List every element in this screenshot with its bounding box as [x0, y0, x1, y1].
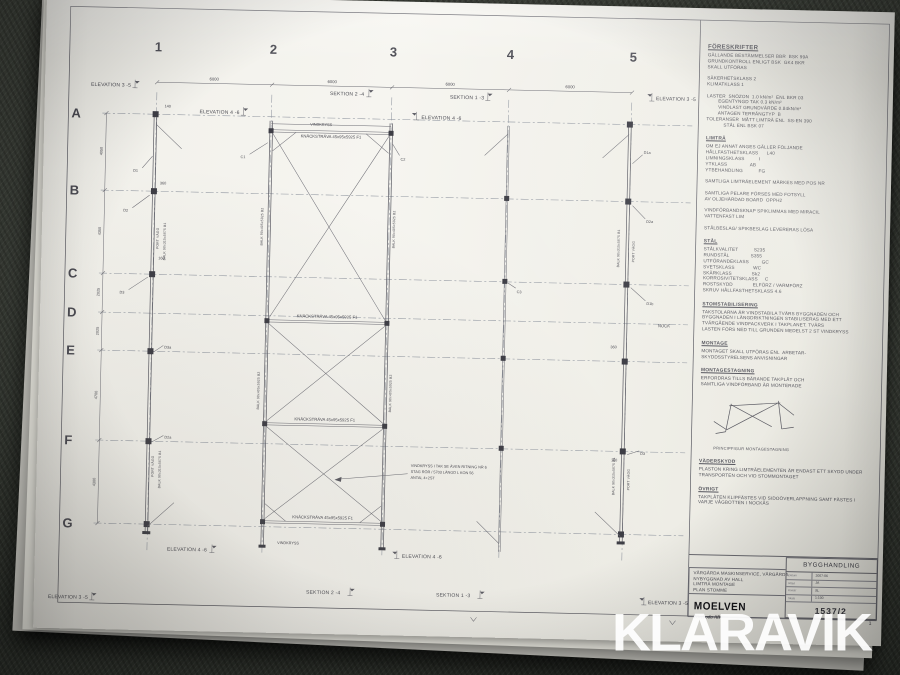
- grid-letter: F: [64, 432, 72, 447]
- beam-label: BALK 90x405x5925 B2: [388, 374, 393, 412]
- callout: D3a: [164, 345, 172, 349]
- dimension-label: 4350: [98, 227, 102, 236]
- elevation-label: ELEVATION 4 -6: [199, 109, 239, 116]
- grid-number: 3: [390, 44, 398, 59]
- wall-label: PORT VÄGG: [155, 227, 159, 249]
- left-dimension-chain: 4050 4350 2025 2025 4700 4300: [91, 111, 108, 525]
- section-label: SEKTION 1 -3: [436, 592, 470, 599]
- grid-letter: C: [68, 265, 78, 280]
- callout: D1b: [646, 302, 653, 306]
- field-label: Skala: [786, 595, 812, 602]
- dimension-label: 4300: [92, 478, 96, 487]
- elevation-label: ELEVATION 4 -6: [402, 554, 442, 561]
- beam-label: BALK 90x315x5675 B1: [611, 457, 616, 495]
- strut-label: KNÄCKSTRÄVA 45x95x5925 F1: [292, 514, 353, 520]
- dimension-label: 360: [610, 345, 616, 349]
- dimension-label: 160: [611, 458, 617, 462]
- strut-label: KNÄCKSTRÄVA 45x95x5925 F1: [301, 133, 362, 139]
- field-value: JA: [812, 580, 876, 588]
- notes-section-lines: TAKPLÅTEN KLIPFÄSTES VID SIDOÖVERLAPPNIN…: [698, 494, 874, 509]
- wall-label: PORT VÄGG: [626, 469, 630, 491]
- strut-label: KNÄCKSTRÄVA 45x95x5925 F1: [294, 416, 355, 422]
- braced-frames-grid-2-3: [258, 121, 394, 551]
- notes-section-lines: GÄLLANDE BESTÄMMELSER BBR BSK 99AGRUNDKO…: [706, 52, 884, 131]
- grid-letters: A B C D E F G: [62, 105, 81, 530]
- dimension-label: 6000: [327, 79, 337, 84]
- notes-section-lines: ERFORDRAS TILLS BÄRANDE TAKPLÅT OCHSAMTL…: [701, 376, 877, 391]
- vindkryss-label: VINDKRYSS: [310, 123, 332, 127]
- wall-label: PORT VÄGG: [151, 455, 155, 477]
- dimension-label: 2025: [96, 288, 100, 297]
- project-description: VÅRGÅRDA MASKINSERVICE, VÅRGÅRDANYBYGGNA…: [688, 567, 786, 596]
- wall-label: PORT VÄGG: [631, 241, 635, 263]
- field-label: Datum: [786, 572, 812, 579]
- beam-label: BALK 90x405x5925 B2: [256, 372, 261, 410]
- drawing-sheet: 1 2 3 4 5 A B C D E F G 6000 6000 6000 6…: [33, 0, 895, 646]
- column-line-grid-4: [476, 125, 511, 551]
- callout: D1a: [644, 151, 652, 155]
- grid-number: 4: [507, 47, 515, 62]
- dimension-label: 4050: [100, 147, 104, 156]
- vindkryss-label: VINDKRYSS: [277, 541, 299, 545]
- dimension-label: 360: [160, 181, 166, 185]
- notes-section-lines: OM EJ ANNAT ANGES GÄLLER FÖLJANDEHÅLLFAS…: [704, 144, 882, 235]
- field-value: 2007-06: [812, 573, 876, 581]
- top-dimension-chain: 6000 6000 6000 6000: [155, 75, 634, 94]
- notes-section-montagestagning: MONTAGESTAGNING ERFORDRAS TILLS BÄRANDE …: [695, 369, 877, 455]
- elevation-label: ELEVATION 3 -5: [48, 594, 88, 601]
- beam-label: BALK 90x315x5675 B1: [616, 229, 621, 267]
- wall-grid-1: [142, 111, 182, 535]
- elevation-label: ELEVATION 4 -6: [421, 115, 461, 122]
- notes-section-foreskrifter: FÖRESKRIFTER GÄLLANDE BESTÄMMELSER BBR B…: [702, 44, 884, 131]
- notes-section-ovrigt: ÖVRIGT TAKPLÅTEN KLIPFÄSTES VID SIDOÖVER…: [694, 487, 874, 510]
- dimension-label: 6000: [565, 84, 575, 89]
- callout: D3: [640, 452, 645, 456]
- notes-section-lines: TAKSTOLARNA ÄR VINDSTABILA TVÄRS BYGGNAD…: [702, 309, 878, 336]
- callout: D3: [119, 290, 124, 294]
- dimension-label: 2025: [96, 327, 100, 336]
- wind-cross-annotation: VINDKRYSS I TAK SE ÄVEN RITNING NR 6 STA…: [334, 462, 486, 485]
- field-label: Ritad: [786, 580, 812, 587]
- section-label: SEKTION 2 -4: [330, 91, 364, 98]
- notes-section-lines: MONTAGET SKALL UTFÖRAS ENL ARBETAR-SKYDD…: [701, 348, 877, 363]
- strut-label: KNÄCKSTRÄVA 45x95x5925 F1: [297, 313, 358, 319]
- grid-letter: B: [70, 182, 80, 197]
- annotation-line: STAG RÖR / 5703 LÄNGD L KON 56: [411, 470, 474, 475]
- bracing-principle-figure: [709, 391, 876, 448]
- section-label: SEKTION 1 -3: [450, 95, 484, 102]
- elevation-label: ELEVATION 3 -5: [656, 96, 696, 103]
- grid-letter: A: [71, 105, 81, 120]
- notes-section-stal: STÅL STÅLKVALITET S235RUNDSTÅL S355UTFÖR…: [699, 239, 880, 296]
- dimension-label: 6000: [209, 76, 219, 81]
- field-value: SL: [812, 588, 876, 596]
- grid-letter: D: [67, 304, 77, 319]
- photo-of-structural-drawing: { "photo": { "watermark": "KLARAVIK" }, …: [0, 0, 900, 675]
- callout: D2: [123, 209, 128, 213]
- notes-section-stomstabilisering: STOMSTABILISERING TAKSTOLARNA ÄR VINDSTA…: [698, 302, 879, 336]
- grid-numbers: 1 2 3 4 5: [155, 39, 637, 65]
- beam-label: BALK 90x405x5925 B2: [392, 210, 397, 248]
- callout: C2: [400, 158, 405, 162]
- field-label: Konstr: [786, 587, 812, 594]
- notes-section-vaderskydd: VÄDERSKYDD PLASTON KRING LIMTRÄELEMENTEN…: [695, 459, 875, 482]
- elevation-label: ELEVATION 3 -5: [91, 82, 131, 89]
- callout: D2a: [164, 435, 172, 439]
- member-labels: KNÄCKSTRÄVA 45x95x5925 F1 KNÄCKSTRÄVA 45…: [149, 119, 674, 553]
- grid-letter: E: [66, 342, 75, 357]
- annotation-line: VINDKRYSS I TAK SE ÄVEN RITNING NR 6: [411, 464, 487, 470]
- dimension-label: 4700: [94, 391, 98, 400]
- beam-label: BALK 90x315x5675 B1: [157, 450, 162, 488]
- notes-section-montage: MONTAGE MONTAGET SKALL UTFÖRAS ENL ARBET…: [697, 341, 877, 364]
- section-label: SEKTION 2 -4: [306, 590, 340, 597]
- notes-section-lines: STÅLKVALITET S235RUNDSTÅL S355UTFÖRANDEK…: [703, 247, 880, 297]
- grid-letter: G: [62, 515, 72, 530]
- beam-label: BALK 90x405x5925 B2: [260, 208, 265, 246]
- notes-section-limtra: LIMTRÄ OM EJ ANNAT ANGES GÄLLER FÖLJANDE…: [700, 137, 882, 235]
- callout: C3: [517, 290, 522, 294]
- callout: D1: [133, 169, 138, 173]
- beam-label: BALK 90x315x5675 B1: [162, 222, 167, 260]
- notes-section-lines: PLASTON KRING LIMTRÄELEMENTEN ÄR ENDAST …: [699, 466, 875, 481]
- callout: D2a: [646, 220, 654, 224]
- grid-lines: [93, 91, 693, 564]
- klaravik-watermark: KLARAVIK: [612, 603, 871, 664]
- dimension-label: 140: [165, 104, 171, 108]
- dimension-label: 6000: [445, 82, 455, 87]
- grid-number: 5: [630, 50, 638, 65]
- dimension-label: 160: [158, 256, 164, 260]
- grid-number: 1: [155, 39, 163, 54]
- elevation-label: ELEVATION 4 -6: [167, 547, 207, 554]
- callout: C1: [240, 155, 245, 159]
- specifications-panel: FÖRESKRIFTER GÄLLANDE BESTÄMMELSER BBR B…: [693, 22, 885, 556]
- grid-number: 2: [270, 42, 278, 57]
- nock-label: NOCK: [658, 323, 670, 328]
- annotation-line: ANTAL 4+2ST: [410, 476, 435, 481]
